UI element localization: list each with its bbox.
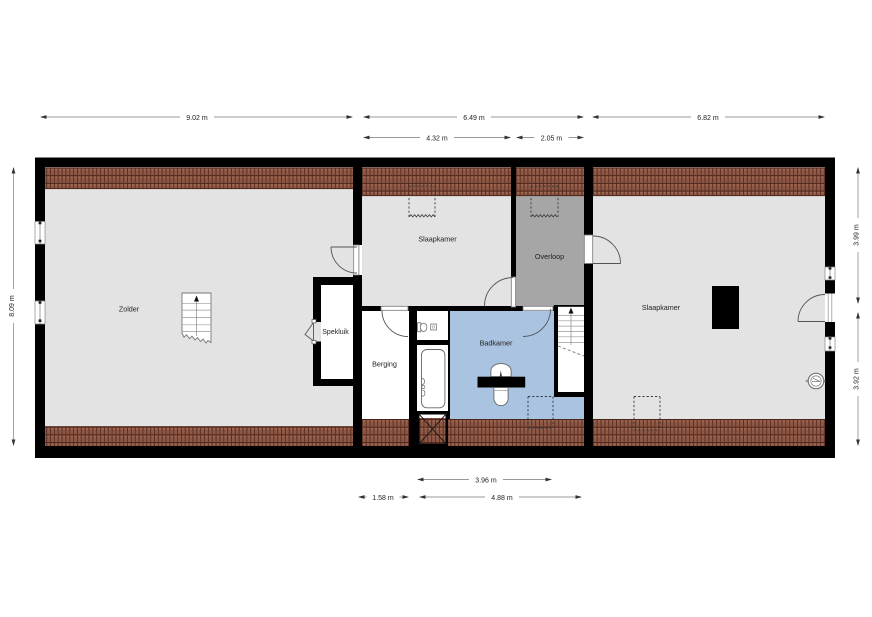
svg-text:3.99 m: 3.99 m [853, 224, 860, 246]
svg-text:Overloop: Overloop [535, 252, 564, 261]
svg-text:9.02 m: 9.02 m [186, 115, 208, 122]
svg-text:Berging: Berging [372, 360, 397, 369]
svg-text:6.49 m: 6.49 m [463, 115, 485, 122]
svg-text:Zolder: Zolder [119, 305, 140, 314]
svg-text:Slaapkamer: Slaapkamer [642, 303, 681, 312]
svg-text:4.32 m: 4.32 m [426, 136, 448, 143]
svg-text:Spekluik: Spekluik [322, 329, 349, 336]
svg-text:4.88 m: 4.88 m [491, 495, 513, 502]
svg-text:Slaapkamer: Slaapkamer [418, 235, 457, 244]
svg-text:Badkamer: Badkamer [480, 339, 513, 348]
svg-text:6.82 m: 6.82 m [697, 115, 719, 122]
svg-text:2.05 m: 2.05 m [541, 136, 563, 143]
svg-text:3.92 m: 3.92 m [853, 368, 860, 390]
svg-text:3.96 m: 3.96 m [475, 478, 497, 485]
svg-text:1.58 m: 1.58 m [372, 495, 394, 502]
svg-text:8.09 m: 8.09 m [9, 295, 16, 317]
